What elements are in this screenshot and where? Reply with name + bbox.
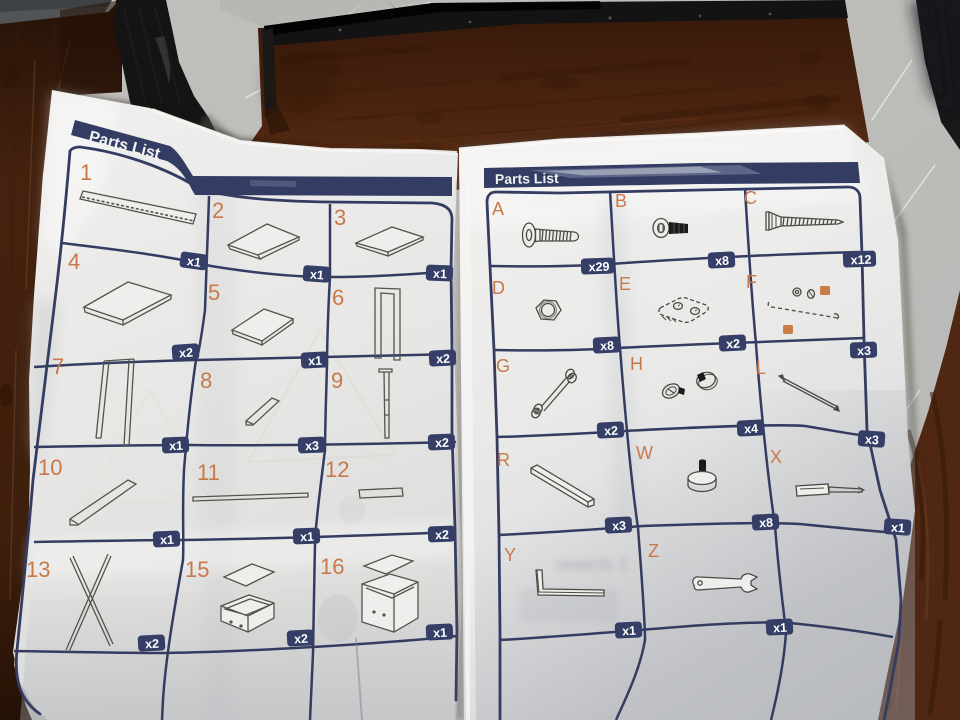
svg-text:x2: x2: [436, 352, 451, 367]
svg-text:x1: x1: [160, 533, 174, 547]
svg-text:13: 13: [26, 557, 50, 582]
svg-text:x2: x2: [179, 346, 194, 361]
svg-text:x1: x1: [433, 267, 447, 281]
svg-text:10: 10: [38, 455, 62, 480]
svg-text:x29: x29: [588, 260, 609, 275]
svg-text:x8: x8: [759, 516, 774, 531]
svg-text:Y: Y: [504, 545, 516, 565]
svg-text:2: 2: [212, 198, 224, 223]
svg-text:x1: x1: [300, 530, 314, 544]
svg-text:x2: x2: [435, 436, 449, 450]
svg-text:x3: x3: [305, 439, 319, 453]
svg-text:H: H: [630, 354, 643, 374]
svg-text:7: 7: [52, 354, 64, 379]
svg-text:x2: x2: [294, 632, 309, 647]
svg-text:x3: x3: [857, 344, 871, 358]
svg-text:G: G: [496, 356, 510, 376]
svg-text:x1: x1: [891, 521, 906, 536]
svg-text:x1: x1: [308, 354, 323, 369]
svg-text:A: A: [492, 199, 504, 219]
svg-text:R: R: [497, 450, 510, 470]
svg-text:L: L: [756, 358, 766, 378]
svg-text:x8: x8: [715, 254, 730, 269]
svg-text:E: E: [619, 274, 631, 294]
svg-text:x8: x8: [600, 339, 615, 354]
svg-text:8: 8: [200, 368, 212, 393]
svg-text:x2: x2: [604, 424, 619, 439]
svg-text:11: 11: [197, 460, 220, 485]
svg-text:6: 6: [332, 285, 344, 310]
svg-text:12: 12: [325, 457, 349, 482]
svg-text:5: 5: [208, 280, 220, 305]
svg-text:1: 1: [80, 160, 92, 185]
svg-text:x1: x1: [622, 624, 637, 639]
svg-text:x1: x1: [310, 268, 325, 283]
svg-text:1 drawer: 1 drawer: [554, 554, 628, 574]
svg-text:9: 9: [331, 368, 343, 393]
svg-text:B: B: [615, 191, 627, 211]
svg-text:x1: x1: [773, 621, 788, 636]
svg-text:15: 15: [185, 557, 209, 582]
svg-text:3: 3: [334, 205, 346, 230]
svg-text:W: W: [636, 443, 653, 463]
svg-text:Z: Z: [648, 541, 659, 561]
svg-text:Parts List: Parts List: [495, 170, 559, 187]
svg-text:x2: x2: [435, 528, 449, 542]
svg-text:D: D: [492, 278, 505, 298]
svg-text:x4: x4: [744, 422, 759, 437]
svg-text:C: C: [744, 188, 757, 208]
svg-text:x2: x2: [145, 637, 160, 652]
svg-text:x2: x2: [726, 337, 741, 352]
svg-text:x12: x12: [850, 253, 871, 268]
svg-text:16: 16: [320, 554, 344, 579]
svg-text:x3: x3: [865, 433, 880, 448]
svg-text:4: 4: [68, 249, 80, 274]
svg-text:x1: x1: [186, 254, 202, 270]
svg-text:x3: x3: [612, 519, 627, 534]
svg-text:F: F: [746, 272, 757, 292]
svg-text:x1: x1: [169, 439, 183, 453]
svg-text:X: X: [770, 447, 782, 467]
svg-text:x1: x1: [433, 626, 448, 641]
